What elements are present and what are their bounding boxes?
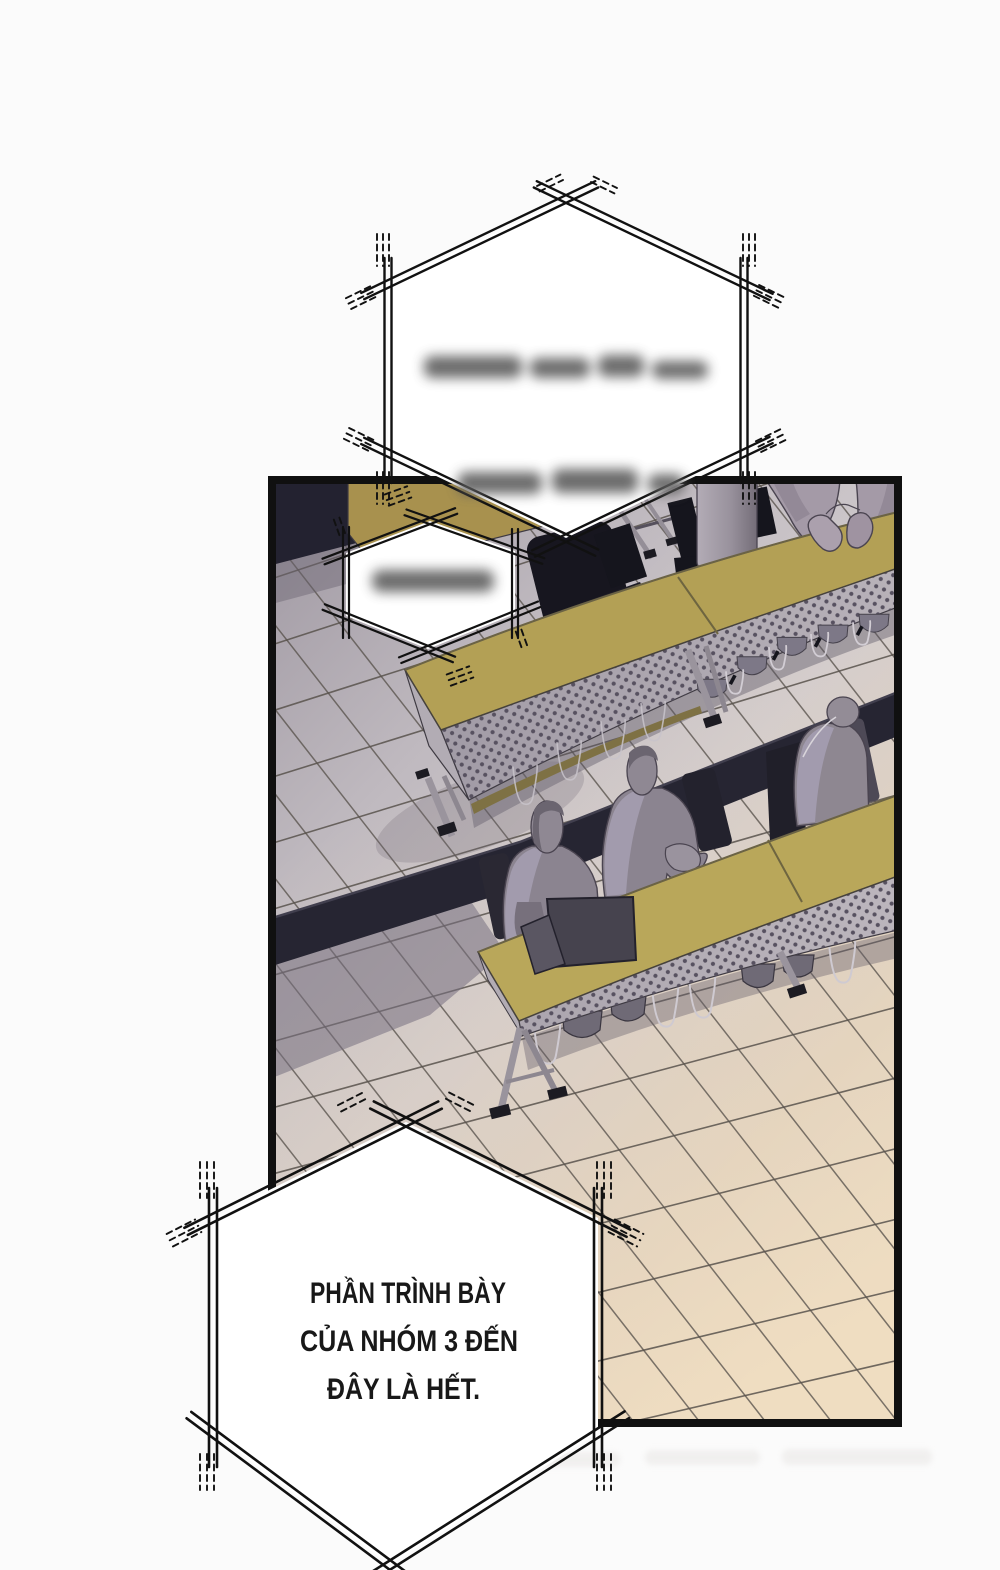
svg-text:CỦA NHÓM 3 ĐẾN: CỦA NHÓM 3 ĐẾN — [300, 1324, 518, 1358]
svg-text:ĐÂY LÀ HẾT.: ĐÂY LÀ HẾT. — [327, 1372, 480, 1406]
svg-text:PHẦN TRÌNH BÀY: PHẦN TRÌNH BÀY — [310, 1276, 506, 1310]
